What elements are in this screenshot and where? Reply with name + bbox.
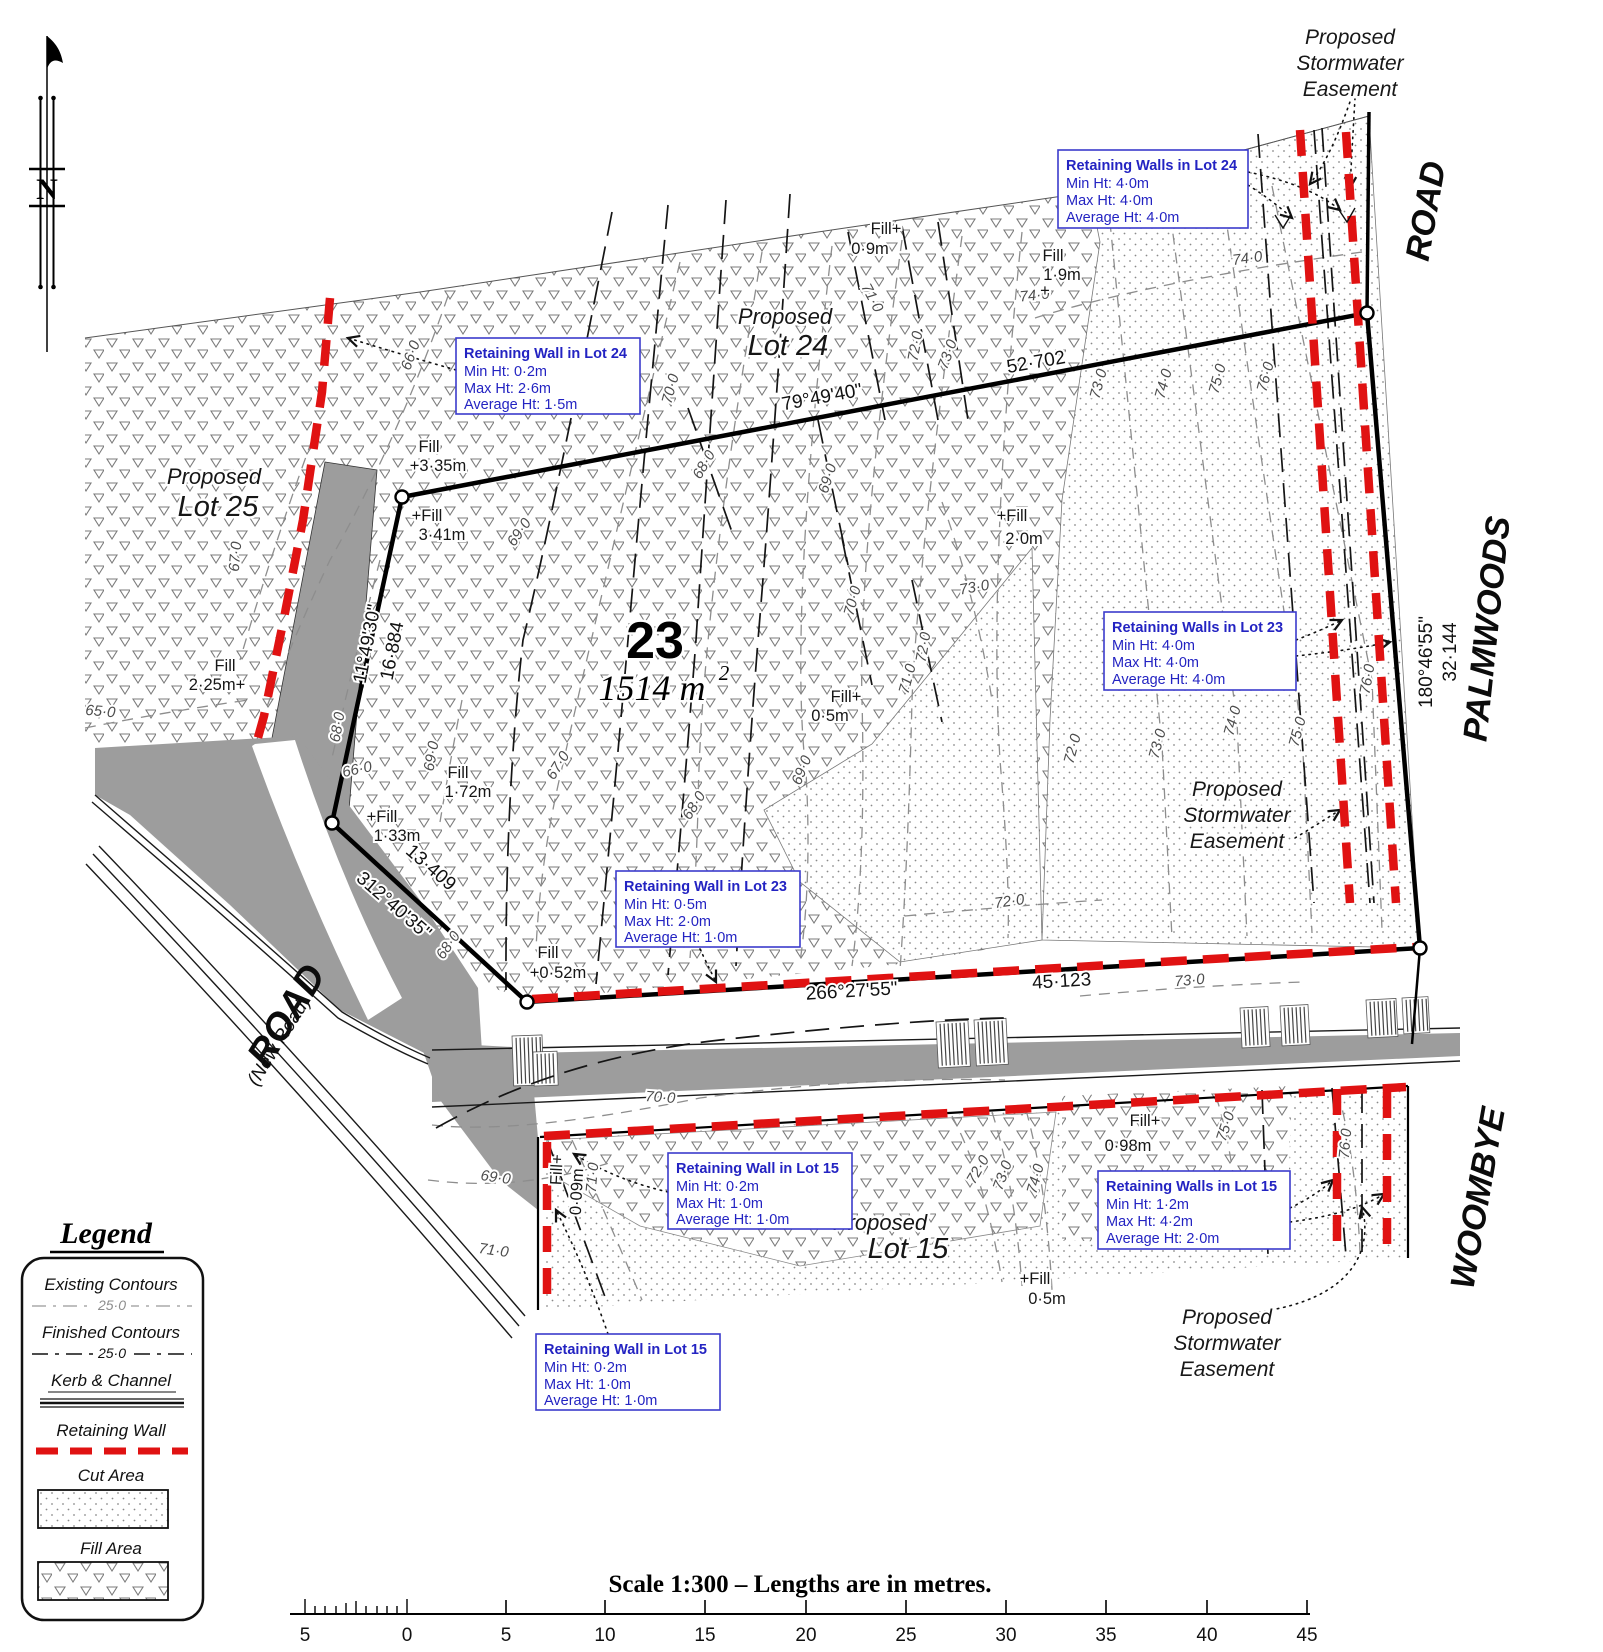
- legend-wall-label: Retaining Wall: [56, 1421, 167, 1440]
- callout-avg: Average Ht: 1·5m: [464, 397, 577, 413]
- fill-label: 0·5m: [811, 707, 849, 725]
- scale-tick: 35: [1095, 1625, 1116, 1646]
- fill-label: 0·09m: [567, 1168, 587, 1216]
- legend-finished-value: 25·0: [97, 1345, 126, 1361]
- lot25-name: Lot 25: [178, 491, 259, 523]
- north-arrow: N: [29, 36, 65, 352]
- fill-label: Fill+: [547, 1154, 567, 1186]
- lot24-name: Lot 24: [748, 330, 829, 362]
- lot23-number: 23: [626, 612, 684, 670]
- callout-title: Retaining Walls in Lot 15: [1106, 1179, 1277, 1195]
- woombye-road-name: WOOMBYE: [1444, 1103, 1513, 1291]
- bearing-bottom-angle: 266°27'55": [805, 978, 898, 1005]
- callout-min: Min Ht: 1·2m: [1106, 1197, 1189, 1213]
- scale-tick: 10: [594, 1625, 615, 1646]
- fill-label: Fill+: [831, 688, 862, 706]
- contour-label: 71·0: [478, 1240, 511, 1261]
- legend-title: Legend: [59, 1217, 153, 1250]
- callout-max: Max Ht: 4·2m: [1106, 1214, 1193, 1230]
- fill-label: +0·52m: [530, 964, 586, 982]
- callout-lot24-wall: Retaining Wall in Lot 24 Min Ht: 0·2m Ma…: [456, 338, 640, 414]
- callout-lot23-wall: Retaining Wall in Lot 23 Min Ht: 0·5m Ma…: [616, 871, 800, 947]
- callout-max: Max Ht: 4·0m: [1066, 193, 1153, 209]
- fill-label: +3·35m: [410, 457, 466, 475]
- scale-tick: 45: [1296, 1625, 1317, 1646]
- callout-max: Max Ht: 2·0m: [624, 914, 711, 930]
- callout-title: Retaining Walls in Lot 23: [1112, 620, 1283, 636]
- callout-min: Min Ht: 4·0m: [1112, 638, 1195, 654]
- fill-plus-mark: +: [1040, 282, 1050, 300]
- scale-tick: 0: [402, 1625, 413, 1646]
- callout-max: Max Ht: 4·0m: [1112, 655, 1199, 671]
- fill-label: +Fill: [1020, 1270, 1051, 1288]
- bearing-right-length: 32·144: [1440, 622, 1461, 682]
- lot24-proposed: Proposed: [738, 304, 833, 329]
- palmwoods-road-name: PALMWOODS: [1456, 514, 1517, 743]
- legend-fill-label: Fill Area: [80, 1539, 142, 1558]
- callout-title: Retaining Walls in Lot 24: [1066, 158, 1237, 174]
- callout-avg: Average Ht: 1·0m: [676, 1212, 789, 1228]
- legend-cut-label: Cut Area: [78, 1466, 144, 1485]
- legend-existing-label: Existing Contours: [44, 1275, 178, 1294]
- callout-lot23-walls: Retaining Walls in Lot 23 Min Ht: 4·0m M…: [1104, 612, 1296, 690]
- contour-label: 70·0: [645, 1088, 677, 1107]
- contour-label: 73·0: [1174, 971, 1206, 991]
- easement-top-l2: Stormwater: [1296, 52, 1404, 75]
- lot23-area-sup: 2: [719, 661, 730, 685]
- fill-label: 0·98m: [1105, 1137, 1152, 1155]
- fill-label: 2·25m+: [189, 676, 245, 694]
- fill-label: 0·5m: [1028, 1290, 1066, 1308]
- callout-avg: Average Ht: 4·0m: [1066, 210, 1179, 226]
- legend-kerb-label: Kerb & Channel: [51, 1371, 172, 1390]
- easement-top-l1: Proposed: [1305, 26, 1396, 49]
- contour-label: 76·0: [1336, 1127, 1356, 1159]
- callout-min: Min Ht: 0·5m: [624, 897, 707, 913]
- callout-title: Retaining Wall in Lot 23: [624, 879, 787, 895]
- scale-tick: 30: [995, 1625, 1016, 1646]
- contour-label: 67·0: [226, 540, 246, 572]
- callout-max: Max Ht: 1·0m: [544, 1377, 631, 1393]
- callout-min: Min Ht: 4·0m: [1066, 176, 1149, 192]
- site-plan-sheet: 65·0 66·0 67·0 68·0 66·0 69·0 68·0 67·0 …: [0, 0, 1603, 1652]
- bearing-right-angle: 180°46'55": [1416, 616, 1437, 708]
- callout-avg: Average Ht: 4·0m: [1112, 672, 1225, 688]
- easement-mid-l1: Proposed: [1192, 778, 1283, 801]
- lot15-name: Lot 15: [868, 1233, 949, 1265]
- easement-bot-l3: Easement: [1180, 1358, 1276, 1381]
- bearing-bottom-length: 45·123: [1031, 969, 1091, 994]
- callout-title: Retaining Wall in Lot 15: [544, 1342, 707, 1358]
- scale-tick: 15: [694, 1625, 715, 1646]
- fill-label: +Fill: [997, 507, 1028, 525]
- lot23-area: 1514 m: [599, 668, 706, 708]
- contour-label: 65·0: [85, 702, 117, 722]
- scale-tick: 20: [795, 1625, 816, 1646]
- fill-label: Fill: [1042, 247, 1063, 265]
- callout-lot15-wall-mid: Retaining Wall in Lot 15 Min Ht: 0·2m Ma…: [668, 1153, 852, 1229]
- fill-label: 2·0m: [1005, 530, 1043, 548]
- callout-lot24-walls: Retaining Walls in Lot 24 Min Ht: 4·0m M…: [1058, 150, 1248, 228]
- scale-tick: 5: [501, 1625, 512, 1646]
- callout-max: Max Ht: 2·6m: [464, 381, 551, 397]
- easement-mid-l3: Easement: [1190, 830, 1286, 853]
- fill-label: +Fill: [367, 808, 398, 826]
- lot25-proposed: Proposed: [167, 464, 262, 489]
- callout-title: Retaining Wall in Lot 15: [676, 1161, 839, 1177]
- scale-bar: Scale 1:300 – Lengths are in metres. 5 0…: [290, 1571, 1318, 1646]
- contour-label: 69·0: [480, 1167, 513, 1188]
- callout-avg: Average Ht: 2·0m: [1106, 1231, 1219, 1247]
- site-plan-drawing: 65·0 66·0 67·0 68·0 66·0 69·0 68·0 67·0 …: [0, 0, 1603, 1652]
- callout-min: Min Ht: 0·2m: [676, 1179, 759, 1195]
- fill-label: Fill: [418, 438, 439, 456]
- callout-min: Min Ht: 0·2m: [544, 1360, 627, 1376]
- fill-label: 1·72m: [445, 783, 492, 801]
- fill-label: Fill+: [871, 220, 902, 238]
- easement-mid-l2: Stormwater: [1183, 804, 1291, 827]
- north-letter: N: [36, 173, 58, 206]
- scale-caption: Scale 1:300 – Lengths are in metres.: [608, 1571, 991, 1598]
- fill-label: Fill: [537, 944, 558, 962]
- callout-max: Max Ht: 1·0m: [676, 1196, 763, 1212]
- scale-tick: 5: [300, 1625, 311, 1646]
- legend-existing-value: 25·0: [97, 1297, 126, 1313]
- easement-bot-l2: Stormwater: [1173, 1332, 1281, 1355]
- fill-label: +Fill: [412, 507, 443, 525]
- fill-label: Fill+: [1130, 1112, 1161, 1130]
- scale-tick: 40: [1196, 1625, 1217, 1646]
- easement-bot-l1: Proposed: [1182, 1306, 1273, 1329]
- fill-label: 0·9m: [851, 240, 889, 258]
- easement-top-l3: Easement: [1303, 78, 1399, 101]
- callout-lot15-walls: Retaining Walls in Lot 15 Min Ht: 1·2m M…: [1098, 1171, 1290, 1249]
- scale-tick: 25: [895, 1625, 916, 1646]
- callout-min: Min Ht: 0·2m: [464, 364, 547, 380]
- legend-finished-label: Finished Contours: [42, 1323, 180, 1342]
- callout-avg: Average Ht: 1·0m: [544, 1393, 657, 1409]
- legend: Legend Existing Contours 25·0 Finished C…: [22, 1217, 203, 1620]
- fill-label: Fill: [214, 657, 235, 675]
- legend-fill-swatch: [38, 1562, 168, 1600]
- callout-avg: Average Ht: 1·0m: [624, 930, 737, 946]
- fill-label: 3·41m: [419, 526, 466, 544]
- callout-title: Retaining Wall in Lot 24: [464, 346, 627, 362]
- legend-cut-swatch: [38, 1490, 168, 1528]
- north-arrow-flag: [47, 36, 63, 69]
- callout-lot15-wall-bottom: Retaining Wall in Lot 15 Min Ht: 0·2m Ma…: [536, 1334, 720, 1410]
- road-top-name: ROAD: [1399, 158, 1454, 263]
- fill-label: Fill: [447, 764, 468, 782]
